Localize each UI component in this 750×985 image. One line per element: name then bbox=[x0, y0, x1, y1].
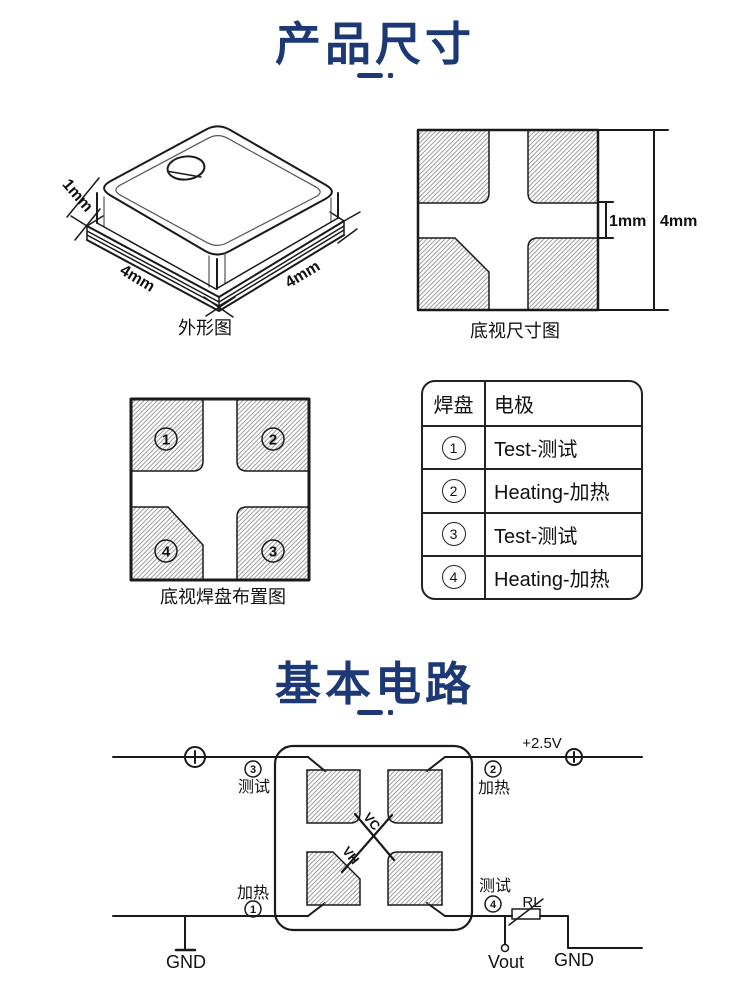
table-row-3-pad: 3 bbox=[423, 512, 486, 555]
pad-electrode-table: 焊盘 电极 1 Test-测试 2 Heating-加热 3 Test-测试 4… bbox=[421, 380, 643, 600]
supply-plus-left bbox=[189, 751, 201, 763]
gnd-right-label: GND bbox=[554, 950, 594, 970]
table-row-1-pad: 1 bbox=[423, 425, 486, 468]
table-pad-3-badge: 3 bbox=[442, 522, 466, 546]
table-row-4-electrode-text: Heating-加热 bbox=[494, 563, 610, 592]
dim-label-gap: 1mm bbox=[609, 213, 646, 230]
table-row-2-electrode-text: Heating-加热 bbox=[494, 476, 610, 505]
dim-label-height: 1mm bbox=[59, 176, 96, 215]
table-row-2-electrode: Heating-加热 bbox=[486, 468, 641, 511]
sensor-pad-br bbox=[388, 852, 442, 905]
table-row-4-electrode: Heating-加热 bbox=[486, 555, 641, 598]
table-pad-4-badge: 4 bbox=[442, 565, 466, 589]
underline-dot bbox=[388, 710, 393, 715]
underline-bar bbox=[357, 710, 383, 715]
pad-top-left bbox=[418, 130, 489, 203]
load-resistor-label: RL bbox=[522, 894, 541, 911]
pin-2-label: 加热 bbox=[478, 779, 510, 797]
pad-layout-caption: 底视焊盘布置图 bbox=[160, 587, 286, 607]
bottom-view-caption: 底视尺寸图 bbox=[470, 321, 560, 341]
table-header-electrode-text: 电极 bbox=[494, 389, 534, 418]
table-row-4-pad: 4 bbox=[423, 555, 486, 598]
pad-bottom-right bbox=[528, 238, 598, 310]
pad-2-number: 2 bbox=[269, 432, 277, 449]
table-header-pad-text: 焊盘 bbox=[434, 389, 474, 418]
table-row-1-electrode: Test-测试 bbox=[486, 425, 641, 468]
table-row-3-electrode-text: Test-测试 bbox=[494, 520, 577, 549]
table-header-pad: 焊盘 bbox=[423, 382, 486, 425]
bottom-view-drawing: 1mm 4mm 底视尺寸图 bbox=[418, 130, 697, 341]
supply-plus-right bbox=[569, 752, 579, 762]
table-header-electrode: 电极 bbox=[486, 382, 641, 425]
pin-4-number: 4 bbox=[490, 899, 497, 911]
pad-1-number: 1 bbox=[162, 432, 170, 449]
pin-1-number: 1 bbox=[250, 904, 256, 916]
pad-bottom-left bbox=[418, 238, 489, 310]
title-underline-circuit bbox=[357, 710, 393, 715]
circuit-diagram: +2.5V VC VH 3 测试 2 加热 1 加热 4 测试 bbox=[113, 735, 642, 972]
table-pad-1-badge: 1 bbox=[442, 436, 466, 460]
outline-drawing: 1mm 4mm 4mm 外形图 bbox=[59, 126, 360, 338]
sensor-pad-tl bbox=[307, 770, 360, 823]
pin-3-label: 测试 bbox=[238, 778, 270, 796]
pad-3-number: 3 bbox=[269, 544, 277, 561]
dim-ext-left-corner bbox=[71, 216, 87, 226]
pin-2-number: 2 bbox=[490, 764, 496, 776]
supply-voltage-label: +2.5V bbox=[522, 735, 562, 752]
table-row-3-electrode: Test-测试 bbox=[486, 512, 641, 555]
section-title-circuit: 基本电路 bbox=[0, 648, 750, 714]
pin-3-number: 3 bbox=[250, 764, 256, 776]
pin-1-label: 加热 bbox=[237, 884, 269, 902]
table-pad-2-badge: 2 bbox=[442, 479, 466, 503]
sensor-pad-tr bbox=[388, 770, 442, 823]
table-row-1-electrode-text: Test-测试 bbox=[494, 433, 577, 462]
base-back-stubs bbox=[87, 212, 344, 226]
pad-layout-drawing: 1 2 3 4 底视焊盘布置图 bbox=[131, 399, 309, 607]
outline-caption: 外形图 bbox=[178, 318, 232, 338]
lid-plateau-line bbox=[116, 136, 320, 246]
lid-top-face bbox=[104, 126, 332, 254]
gnd-left-label: GND bbox=[166, 952, 206, 972]
vent-hole-chord bbox=[169, 172, 201, 178]
table-row-2-pad: 2 bbox=[423, 468, 486, 511]
pad-4-number: 4 bbox=[162, 544, 171, 561]
vout-label: Vout bbox=[488, 952, 524, 972]
vout-terminal bbox=[502, 945, 509, 952]
pad-top-right bbox=[528, 130, 598, 203]
wire-to-gnd-rail bbox=[540, 916, 642, 948]
pin-4-label: 测试 bbox=[479, 877, 511, 895]
dim-label-side: 4mm bbox=[660, 213, 697, 230]
page: 产品尺寸 bbox=[0, 0, 750, 985]
